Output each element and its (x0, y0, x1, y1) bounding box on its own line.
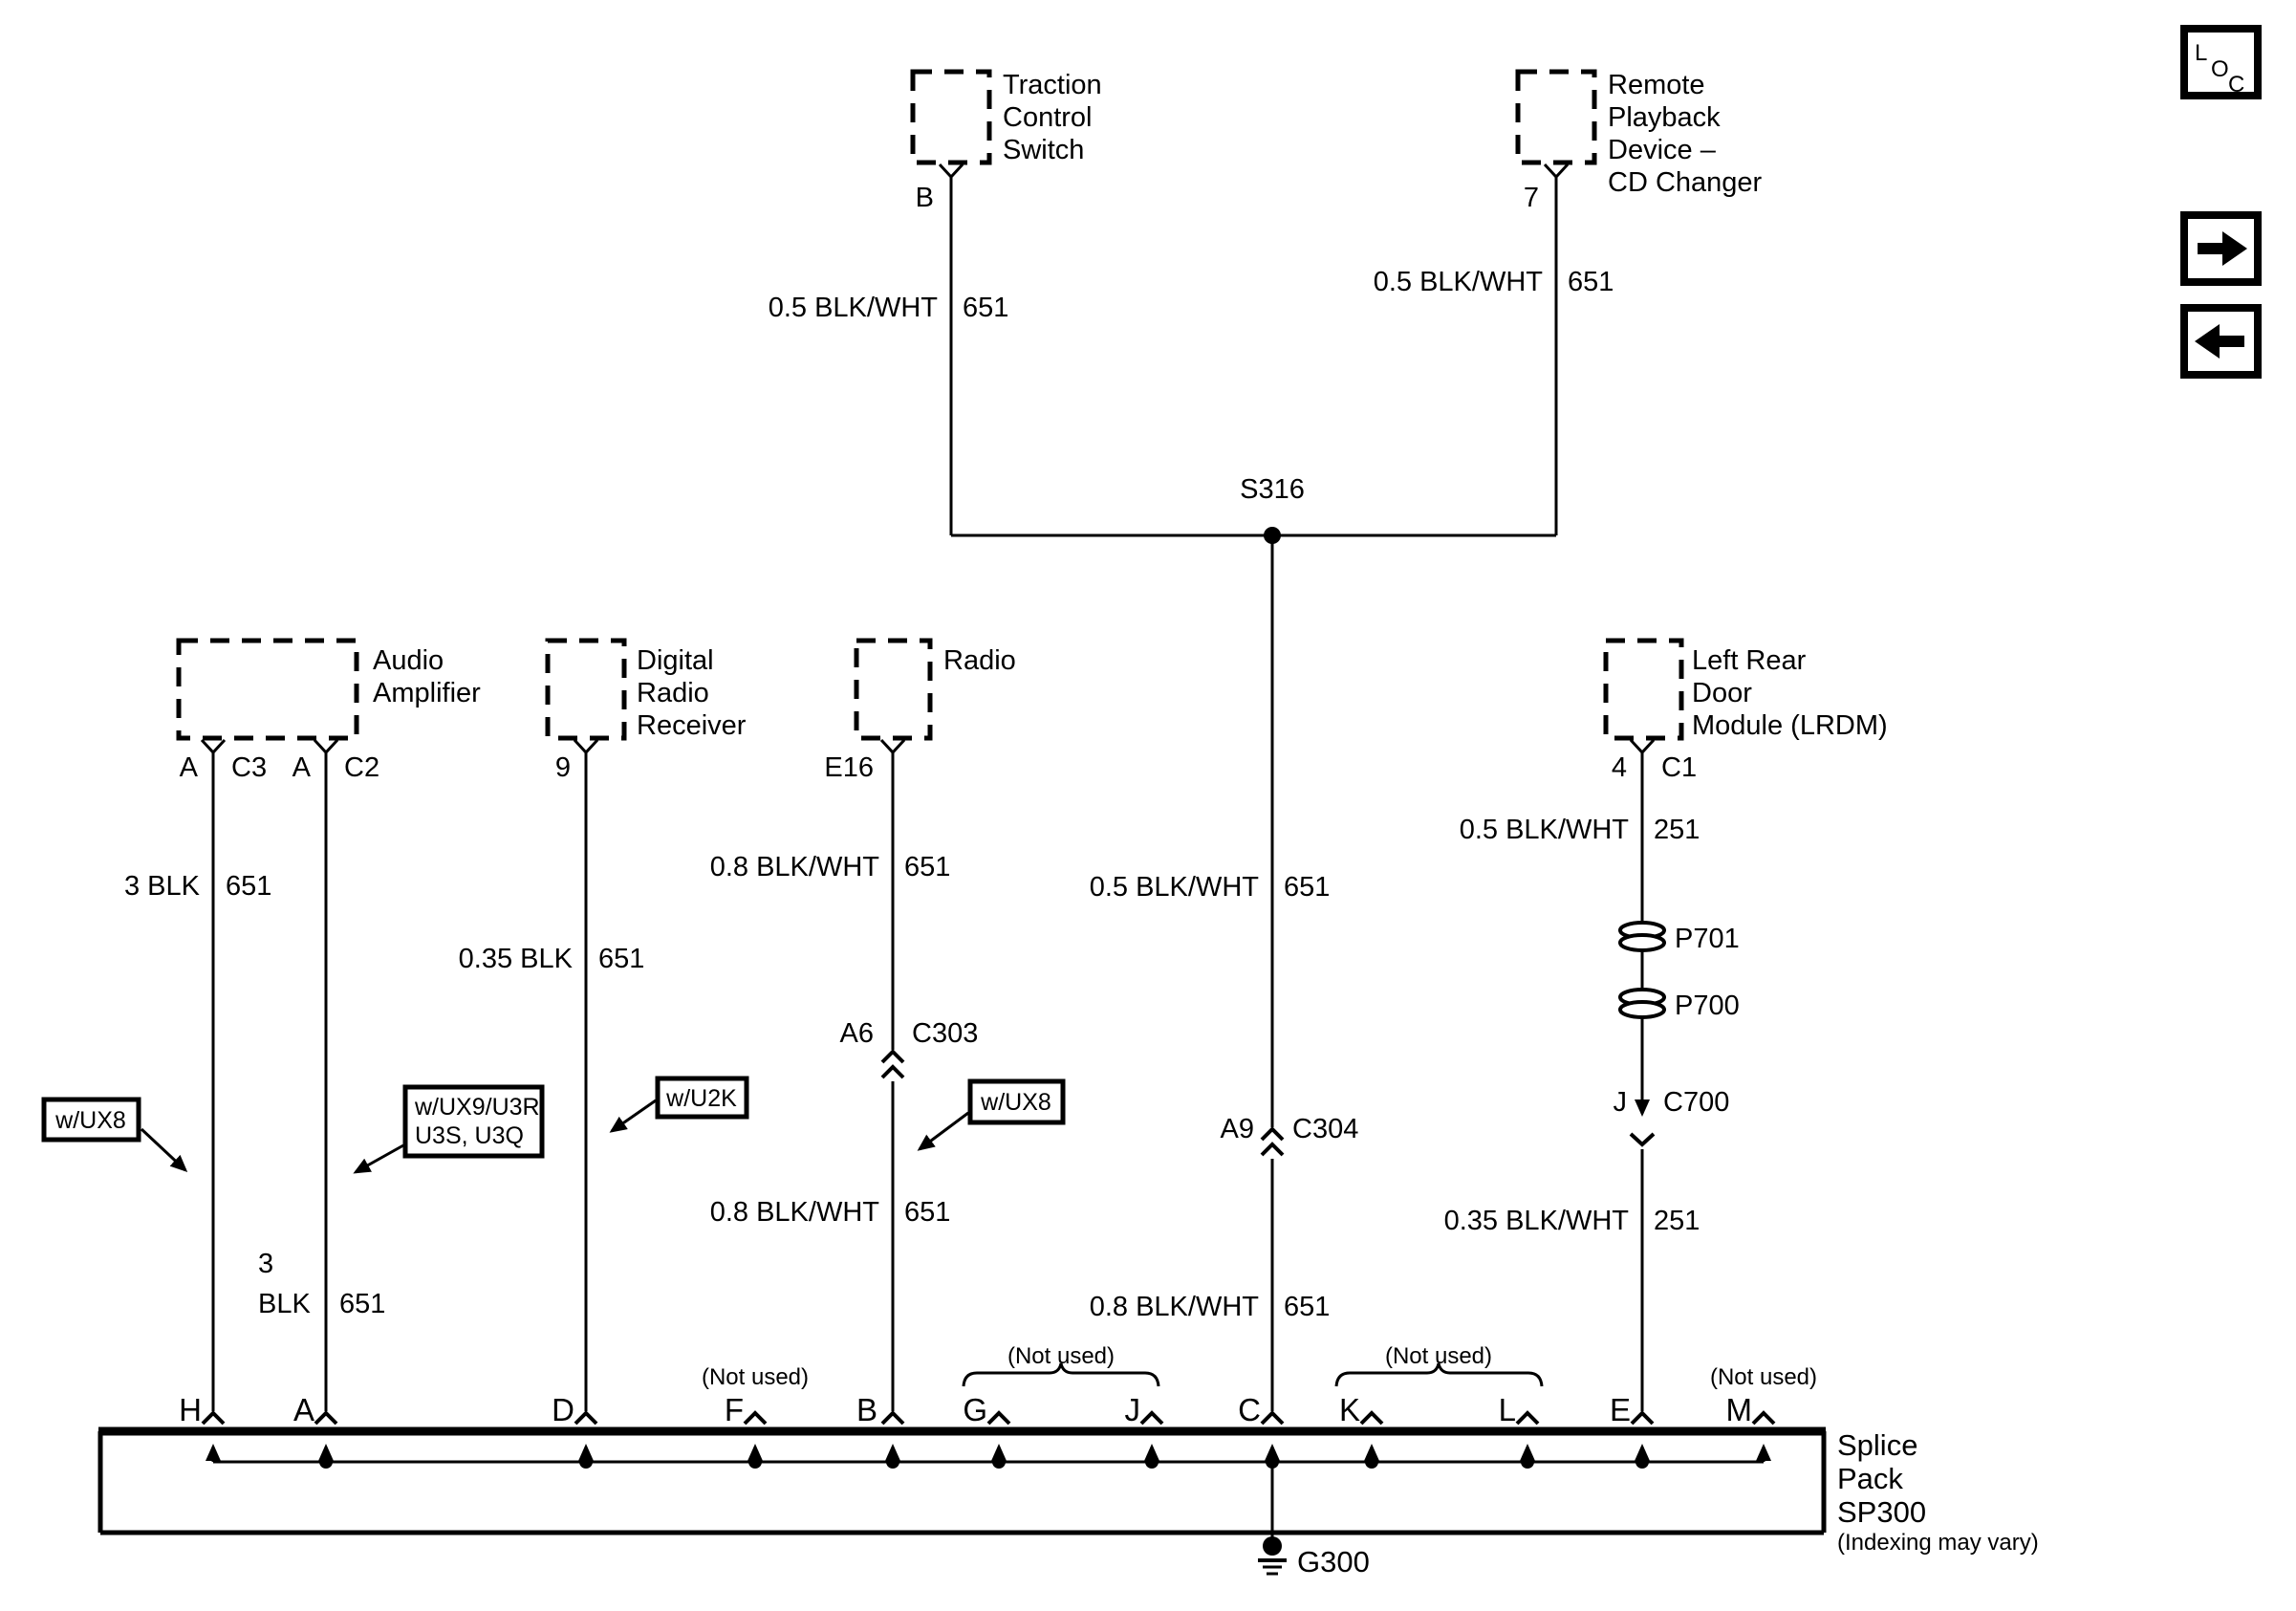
loc-button[interactable]: L O C (2184, 29, 2258, 98)
amp-conn1-label: C3 (231, 752, 267, 783)
traction-label-line3: Switch (1003, 135, 1084, 165)
terminal-chevron-l (1517, 1413, 1538, 1424)
radio-pin-symbol (881, 740, 904, 752)
s316-wire-gauge: 0.5 BLK/WHT (1090, 872, 1260, 903)
splice-pack-title-line1: Splice (1837, 1428, 1917, 1462)
terminal-letter-a: A (293, 1392, 314, 1427)
bus-dot-f (748, 1455, 762, 1469)
option-tag-ux8-left: w/UX8 (44, 1099, 185, 1170)
amp-wire2-circuit: 651 (339, 1289, 385, 1319)
terminal-chevron-b (882, 1413, 903, 1424)
not-used-label-f: (Not used) (702, 1364, 809, 1390)
lrdm-upper-wire-gauge: 0.5 BLK/WHT (1460, 815, 1630, 845)
radio-lower-wire-gauge: 0.8 BLK/WHT (710, 1197, 880, 1228)
lrdm-lower-wire-gauge: 0.35 BLK/WHT (1444, 1206, 1630, 1236)
terminal-chevron-h (203, 1413, 224, 1424)
splice-s316: S316 0.5 BLK/WHT 651 A9 C304 0.8 BLK/WHT… (951, 474, 1556, 1411)
lrdm-lower-wire-circuit: 251 (1654, 1206, 1700, 1236)
terminal-letter-c: C (1238, 1392, 1261, 1427)
bus-dot-k (1365, 1455, 1378, 1469)
terminal-chevron-k (1361, 1413, 1382, 1424)
ux8-right-tag-label: w/UX8 (980, 1089, 1051, 1116)
amp-wire1-gauge: 3 BLK (124, 871, 201, 902)
cd-changer-pin-label: 7 (1524, 183, 1539, 213)
p700-label: P700 (1675, 991, 1740, 1021)
traction-pin-label: B (916, 183, 934, 213)
bus-dot-a (319, 1455, 333, 1469)
next-page-button[interactable] (2184, 215, 2258, 282)
radio-pin-label: E16 (824, 752, 874, 783)
terminal-letter-d: D (552, 1392, 574, 1427)
traction-wire-gauge: 0.5 BLK/WHT (769, 293, 939, 323)
traction-pin-symbol (940, 164, 963, 177)
audio-amplifier: Audio Amplifier A C3 A C2 3 BLK 651 3 BL… (124, 641, 481, 1411)
option-tag-ux8-right: w/UX8 (920, 1081, 1063, 1149)
cd-changer-label-line3: Device – (1608, 135, 1717, 165)
digital-radio-label-line1: Digital (637, 645, 714, 676)
traction-box (913, 72, 989, 163)
lrdm-label-line2: Door (1692, 678, 1752, 708)
amp-pin2-label: A (292, 752, 312, 783)
ux8-right-tag-arrow (920, 1113, 968, 1149)
arrow-left-icon (2195, 324, 2244, 359)
terminal-chevron-f (745, 1413, 766, 1424)
p701-label: P701 (1675, 924, 1740, 954)
bus-dot-e (1635, 1455, 1649, 1469)
s316-lower-wire-circuit: 651 (1284, 1292, 1330, 1322)
terminal-chevron-d (575, 1413, 596, 1424)
lrdm-label-line3: Module (LRDM) (1692, 710, 1888, 741)
radio-lower-wire-circuit: 651 (904, 1197, 950, 1228)
radio-label: Radio (943, 645, 1016, 676)
traction-label-line1: Traction (1003, 70, 1102, 100)
u2k-tag-arrow (612, 1100, 656, 1131)
splice-pack-title-line2: Pack (1837, 1462, 1903, 1495)
ux9-tag-label-line2: U3S, U3Q (415, 1122, 524, 1149)
digital-radio-label-line2: Radio (637, 678, 709, 708)
terminal-letter-g: G (963, 1392, 987, 1427)
radio: Radio E16 0.8 BLK/WHT 651 A6 C303 0.8 BL… (710, 641, 1016, 1411)
schematic-page: L O C Traction Control Switch B 0.5 BLK/… (0, 0, 2296, 1611)
radio-upper-wire-gauge: 0.8 BLK/WHT (710, 852, 880, 882)
terminal-chevron-c (1262, 1413, 1283, 1424)
digital-radio-receiver: Digital Radio Receiver 9 0.35 BLK 651 (459, 641, 747, 1411)
bus-dot-j (1145, 1455, 1159, 1469)
terminal-letter-k: K (1339, 1392, 1360, 1427)
audio-amplifier-label-line1: Audio (373, 645, 444, 676)
c303-connector-chevron-2 (882, 1067, 903, 1078)
loc-letter-o: O (2211, 56, 2229, 82)
terminal-letter-b: B (856, 1392, 877, 1427)
s316-lower-wire-gauge: 0.8 BLK/WHT (1090, 1292, 1260, 1322)
digital-radio-pin-label: 9 (555, 752, 571, 783)
bus-dot-l (1521, 1455, 1534, 1469)
digital-radio-box (548, 641, 624, 738)
terminal-chevron-e (1632, 1413, 1653, 1424)
splice-pack-title-line3: SP300 (1837, 1495, 1926, 1529)
option-tag-u2k: w/U2K (612, 1078, 747, 1131)
lrdm-upper-wire-circuit: 251 (1654, 815, 1700, 845)
cd-changer-wire-gauge: 0.5 BLK/WHT (1374, 267, 1544, 297)
loc-letter-c: C (2228, 72, 2244, 98)
bus-dot-b (886, 1455, 899, 1469)
terminal-letter-h: H (179, 1392, 202, 1427)
amp-conn2-label: C2 (344, 752, 379, 783)
terminal-letter-f: F (725, 1392, 744, 1427)
u2k-tag-label: w/U2K (665, 1085, 737, 1112)
s316-label: S316 (1240, 474, 1305, 505)
c303-pin-label: A6 (840, 1018, 874, 1049)
c304-connector-chevron-1 (1262, 1129, 1283, 1140)
not-used-label-m: (Not used) (1710, 1364, 1817, 1390)
amp-pin1-symbol (202, 740, 225, 752)
loc-letter-l: L (2195, 40, 2207, 66)
c304-pin-label: A9 (1221, 1114, 1254, 1144)
terminal-letter-j: J (1125, 1392, 1141, 1427)
lrdm-label-line1: Left Rear (1692, 645, 1807, 676)
cd-changer-label-line1: Remote (1608, 70, 1705, 100)
lrdm-conn-label: C1 (1661, 752, 1697, 783)
prev-page-button[interactable] (2184, 308, 2258, 375)
amp-wire1-circuit: 651 (226, 871, 271, 902)
option-tag-ux9: w/UX9/U3R, U3S, U3Q (356, 1087, 547, 1172)
digital-radio-wire-gauge: 0.35 BLK (459, 944, 574, 974)
digital-radio-wire-circuit: 651 (598, 944, 644, 974)
radio-upper-wire-circuit: 651 (904, 852, 950, 882)
amp-wire2-gauge-line2: BLK (258, 1289, 311, 1319)
c700-connector-label: C700 (1663, 1087, 1729, 1118)
bus-dot-g (992, 1455, 1006, 1469)
digital-radio-label-line3: Receiver (637, 710, 747, 741)
terminal-chevron-g (988, 1413, 1009, 1424)
terminal-letter-m: M (1726, 1392, 1753, 1427)
amp-wire2-gauge-line1: 3 (258, 1249, 273, 1279)
c700-pin-label: J (1614, 1087, 1628, 1118)
cd-changer-wire-circuit: 651 (1568, 267, 1614, 297)
lrdm-box (1606, 641, 1681, 738)
radio-box (856, 641, 930, 738)
terminal-letter-e: E (1610, 1392, 1631, 1427)
c304-connector-chevron-2 (1262, 1144, 1283, 1155)
c700-connector-chevron (1631, 1134, 1654, 1144)
traction-control-switch: Traction Control Switch B 0.5 BLK/WHT 65… (769, 70, 1102, 535)
digital-radio-pin-symbol (574, 740, 597, 752)
audio-amplifier-label-line2: Amplifier (373, 678, 481, 708)
terminal-letter-l: L (1499, 1392, 1516, 1427)
not-used-brace-kl (1336, 1363, 1542, 1386)
traction-wire-circuit: 651 (963, 293, 1008, 323)
cd-changer-label-line4: CD Changer (1608, 167, 1763, 198)
lrdm-pin-symbol (1631, 740, 1654, 752)
not-used-brace-gj (964, 1363, 1159, 1386)
traction-label-line2: Control (1003, 102, 1093, 133)
ux9-tag-arrow (356, 1145, 403, 1172)
splice-pack-sp300: H A D F B G J C K L E M (Not used) (Not … (98, 1343, 2039, 1578)
p701-pass-through-icon2 (1620, 935, 1664, 950)
ux8-left-tag-label: w/UX8 (54, 1107, 126, 1134)
c303-connector-label: C303 (912, 1018, 978, 1049)
terminal-chevron-j (1141, 1413, 1162, 1424)
wiring-diagram: L O C Traction Control Switch B 0.5 BLK/… (0, 0, 2296, 1611)
splice-pack-note: (Indexing may vary) (1837, 1530, 2039, 1556)
p700-pass-through-icon2 (1620, 1002, 1664, 1017)
cd-changer: Remote Playback Device – CD Changer 7 0.… (1374, 70, 1763, 535)
terminal-chevron-a (315, 1413, 336, 1424)
audio-amplifier-box (179, 641, 357, 738)
amp-pin2-symbol (314, 740, 337, 752)
cd-changer-box (1518, 72, 1594, 163)
s316-wire-circuit: 651 (1284, 872, 1330, 903)
c303-connector-chevron-1 (882, 1052, 903, 1062)
cd-changer-pin-symbol (1545, 164, 1568, 177)
ux9-tag-label-line1: w/UX9/U3R, (414, 1094, 547, 1121)
terminal-chevron-m (1753, 1413, 1774, 1424)
cd-changer-label-line2: Playback (1608, 102, 1721, 133)
bus-dot-d (579, 1455, 593, 1469)
ground-label: G300 (1297, 1545, 1370, 1578)
arrow-right-icon (2198, 231, 2247, 266)
amp-pin1-label: A (180, 752, 199, 783)
c304-connector-label: C304 (1292, 1114, 1358, 1144)
left-rear-door-module: Left Rear Door Module (LRDM) 4 C1 0.5 BL… (1444, 641, 1888, 1411)
lrdm-pin-label: 4 (1612, 752, 1627, 783)
ground-symbol-dot (1263, 1536, 1282, 1556)
ux8-left-tag-arrow (141, 1129, 185, 1170)
